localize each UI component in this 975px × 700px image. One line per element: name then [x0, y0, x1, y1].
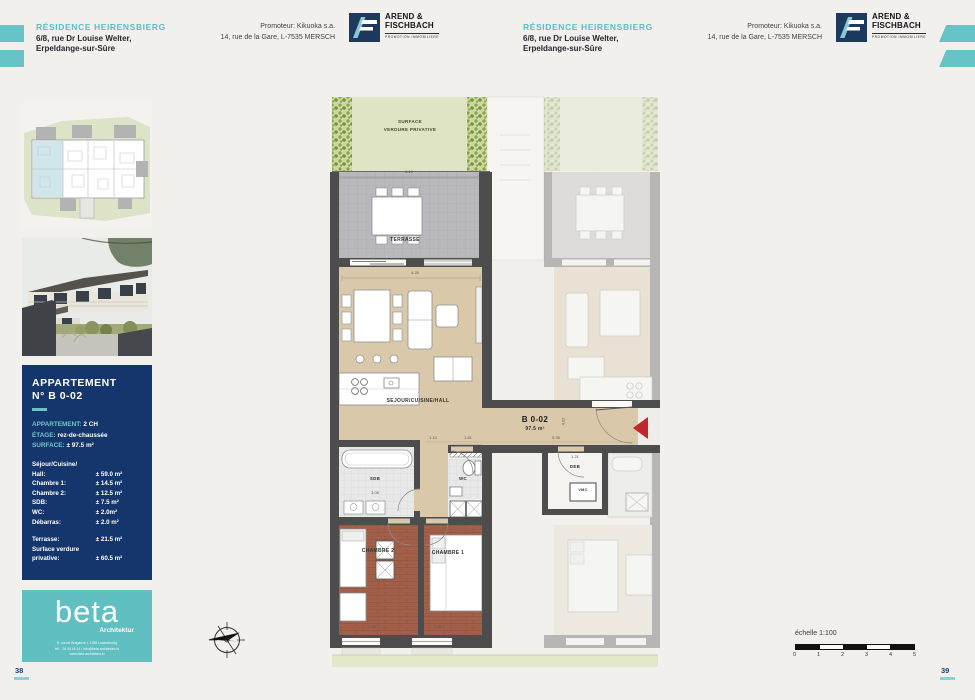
promoter-line-1: Promoteur: Kikuoka s.a. — [175, 22, 335, 33]
dim-hall-depth: 4.52 — [561, 418, 566, 426]
bedroom1-label: CHAMBRE 1 — [432, 550, 464, 556]
scale-ticks: 0 1 2 3 4 5 — [793, 652, 917, 660]
room-row: Séjour/Cuisine/ — [32, 460, 142, 470]
neighbour-unit-faded — [544, 97, 660, 648]
residence-address-1: 6/8, rue Dr Louise Welter, — [523, 34, 653, 44]
logo-tagline: PROMOTION IMMOBILIERE — [385, 33, 439, 40]
dim-bath-width: 3.08 — [371, 490, 379, 495]
page-number-right: 39 — [941, 666, 949, 675]
promoter-line-2: 14, rue de la Gare, L-7535 MERSCH — [175, 33, 335, 44]
teal-dash — [32, 408, 47, 411]
spec-apartment-label: APPARTEMENT: — [32, 421, 82, 428]
room-row: Terrasse:± 21.5 m² — [32, 535, 142, 545]
room-row: privative:± 60.5 m² — [32, 554, 142, 564]
living-label: SEJOUR/CUISINE/HALL — [387, 398, 450, 404]
dim-bedroom1-width: 2.90 — [434, 624, 442, 629]
dim-hall-a: 1.10 — [429, 435, 437, 440]
header-right: RÉSIDENCE HEIRENSBIERG 6/8, rue Dr Louis… — [523, 22, 653, 55]
room-row: Chambre 1:± 14.5 m² — [32, 479, 142, 489]
page-number-left: 38 — [15, 666, 23, 675]
wc-label: WC — [459, 476, 467, 481]
brochure-spread: RÉSIDENCE HEIRENSBIERG 6/8, rue Dr Louis… — [0, 0, 975, 700]
spec-floor-label: ÉTAGE: — [32, 432, 56, 439]
storage-label: DEB — [570, 464, 580, 469]
panel-title-2: N° B 0-02 — [32, 390, 142, 403]
residence-title: RÉSIDENCE HEIRENSBIERG — [36, 22, 166, 32]
promoter-line-1: Promoteur: Kikuoka s.a. — [662, 22, 822, 33]
garden-label: SURFACE — [398, 119, 422, 124]
dim-hall-b: 1.81 — [464, 435, 472, 440]
page-number-underline — [14, 677, 29, 680]
garden-label: VERDURE PRIVATIVE — [384, 127, 436, 132]
teal-stripe — [936, 50, 975, 67]
room-row: Surface verdure — [32, 545, 142, 555]
spec-floor-value: rez-de-chaussée — [57, 432, 107, 439]
floor-plan: SURFACE VERDURE PRIVATIVE 8.10 TERRASSE … — [330, 95, 660, 667]
logo-name-2: FISCHBACH — [385, 22, 439, 31]
room-row: Hall:± 59.0 m² — [32, 470, 142, 480]
dim-terrace-width: 8.10 — [405, 169, 413, 174]
arend-fischbach-logo: AREND & FISCHBACH PROMOTION IMMOBILIERE — [349, 13, 439, 42]
teal-stripe — [0, 25, 24, 42]
dim-hall-c: 5.38 — [552, 435, 560, 440]
beta-architektur-logo: beta Architektur 6, rue de Bragance L-12… — [22, 590, 152, 662]
af-monogram-icon — [836, 13, 867, 42]
promoter-right: Promoteur: Kikuoka s.a. 14, rue de la Ga… — [662, 22, 822, 44]
scale-bar — [795, 644, 915, 650]
bath-label: SDB — [370, 476, 380, 481]
dim-living-width: 4.25 — [411, 270, 419, 275]
apartment-info-panel: APPARTEMENT N° B 0-02 APPARTEMENT: 2 CH … — [22, 365, 152, 580]
residence-address-2: Erpeldange-sur-Sûre — [36, 44, 166, 54]
logo-name-2: FISCHBACH — [872, 22, 926, 31]
beta-name: beta — [22, 598, 152, 626]
spec-apartment-value: 2 CH — [83, 421, 98, 428]
teal-stripe — [936, 25, 975, 42]
unit-label: B 0-02 — [522, 415, 548, 424]
key-plan-thumbnail — [22, 103, 152, 232]
room-row: SDB:± 7.5 m² — [32, 498, 142, 508]
room-areas-list: Séjour/Cuisine/ Hall:± 59.0 m² Chambre 1… — [32, 460, 142, 564]
room-row: WC:± 2.0m² — [32, 508, 142, 518]
logo-tagline: PROMOTION IMMOBILIERE — [872, 33, 926, 40]
dim-bedroom2-width: 2.25 — [368, 624, 376, 629]
spec-surface-value: ± 97.5 m² — [66, 442, 93, 449]
room-row: Chambre 2:± 12.5 m² — [32, 489, 142, 499]
unit-area: 97.5 m² — [525, 426, 544, 432]
north-compass-icon — [205, 620, 247, 665]
room-row: Débarras:± 2.0 m² — [32, 518, 142, 528]
floor-plan-drawing — [330, 95, 660, 667]
residence-title: RÉSIDENCE HEIRENSBIERG — [523, 22, 653, 32]
residence-address-1: 6/8, rue Dr Louise Welter, — [36, 34, 166, 44]
terrace-label: TERRASSE — [390, 237, 420, 243]
vent-label: VMC — [578, 488, 587, 492]
spec-surface-label: SURFACE: — [32, 442, 65, 449]
beta-web: www.beta-architektur.lu — [22, 652, 152, 658]
panel-title-1: APPARTEMENT — [32, 377, 142, 390]
scale-label: échelle 1:100 — [795, 630, 837, 637]
teal-stripe — [0, 50, 24, 67]
arend-fischbach-logo: AREND & FISCHBACH PROMOTION IMMOBILIERE — [836, 13, 926, 42]
page-number-underline — [940, 677, 955, 680]
af-monogram-icon — [349, 13, 380, 42]
promoter-left: Promoteur: Kikuoka s.a. 14, rue de la Ga… — [175, 22, 335, 44]
residence-address-2: Erpeldange-sur-Sûre — [523, 44, 653, 54]
dim-storage-width: 1.21 — [571, 454, 579, 459]
promoter-line-2: 14, rue de la Gare, L-7535 MERSCH — [662, 33, 822, 44]
bedroom2-label: CHAMBRE 2 — [362, 548, 394, 554]
building-render-photo — [22, 238, 152, 361]
header-left: RÉSIDENCE HEIRENSBIERG 6/8, rue Dr Louis… — [36, 22, 166, 55]
